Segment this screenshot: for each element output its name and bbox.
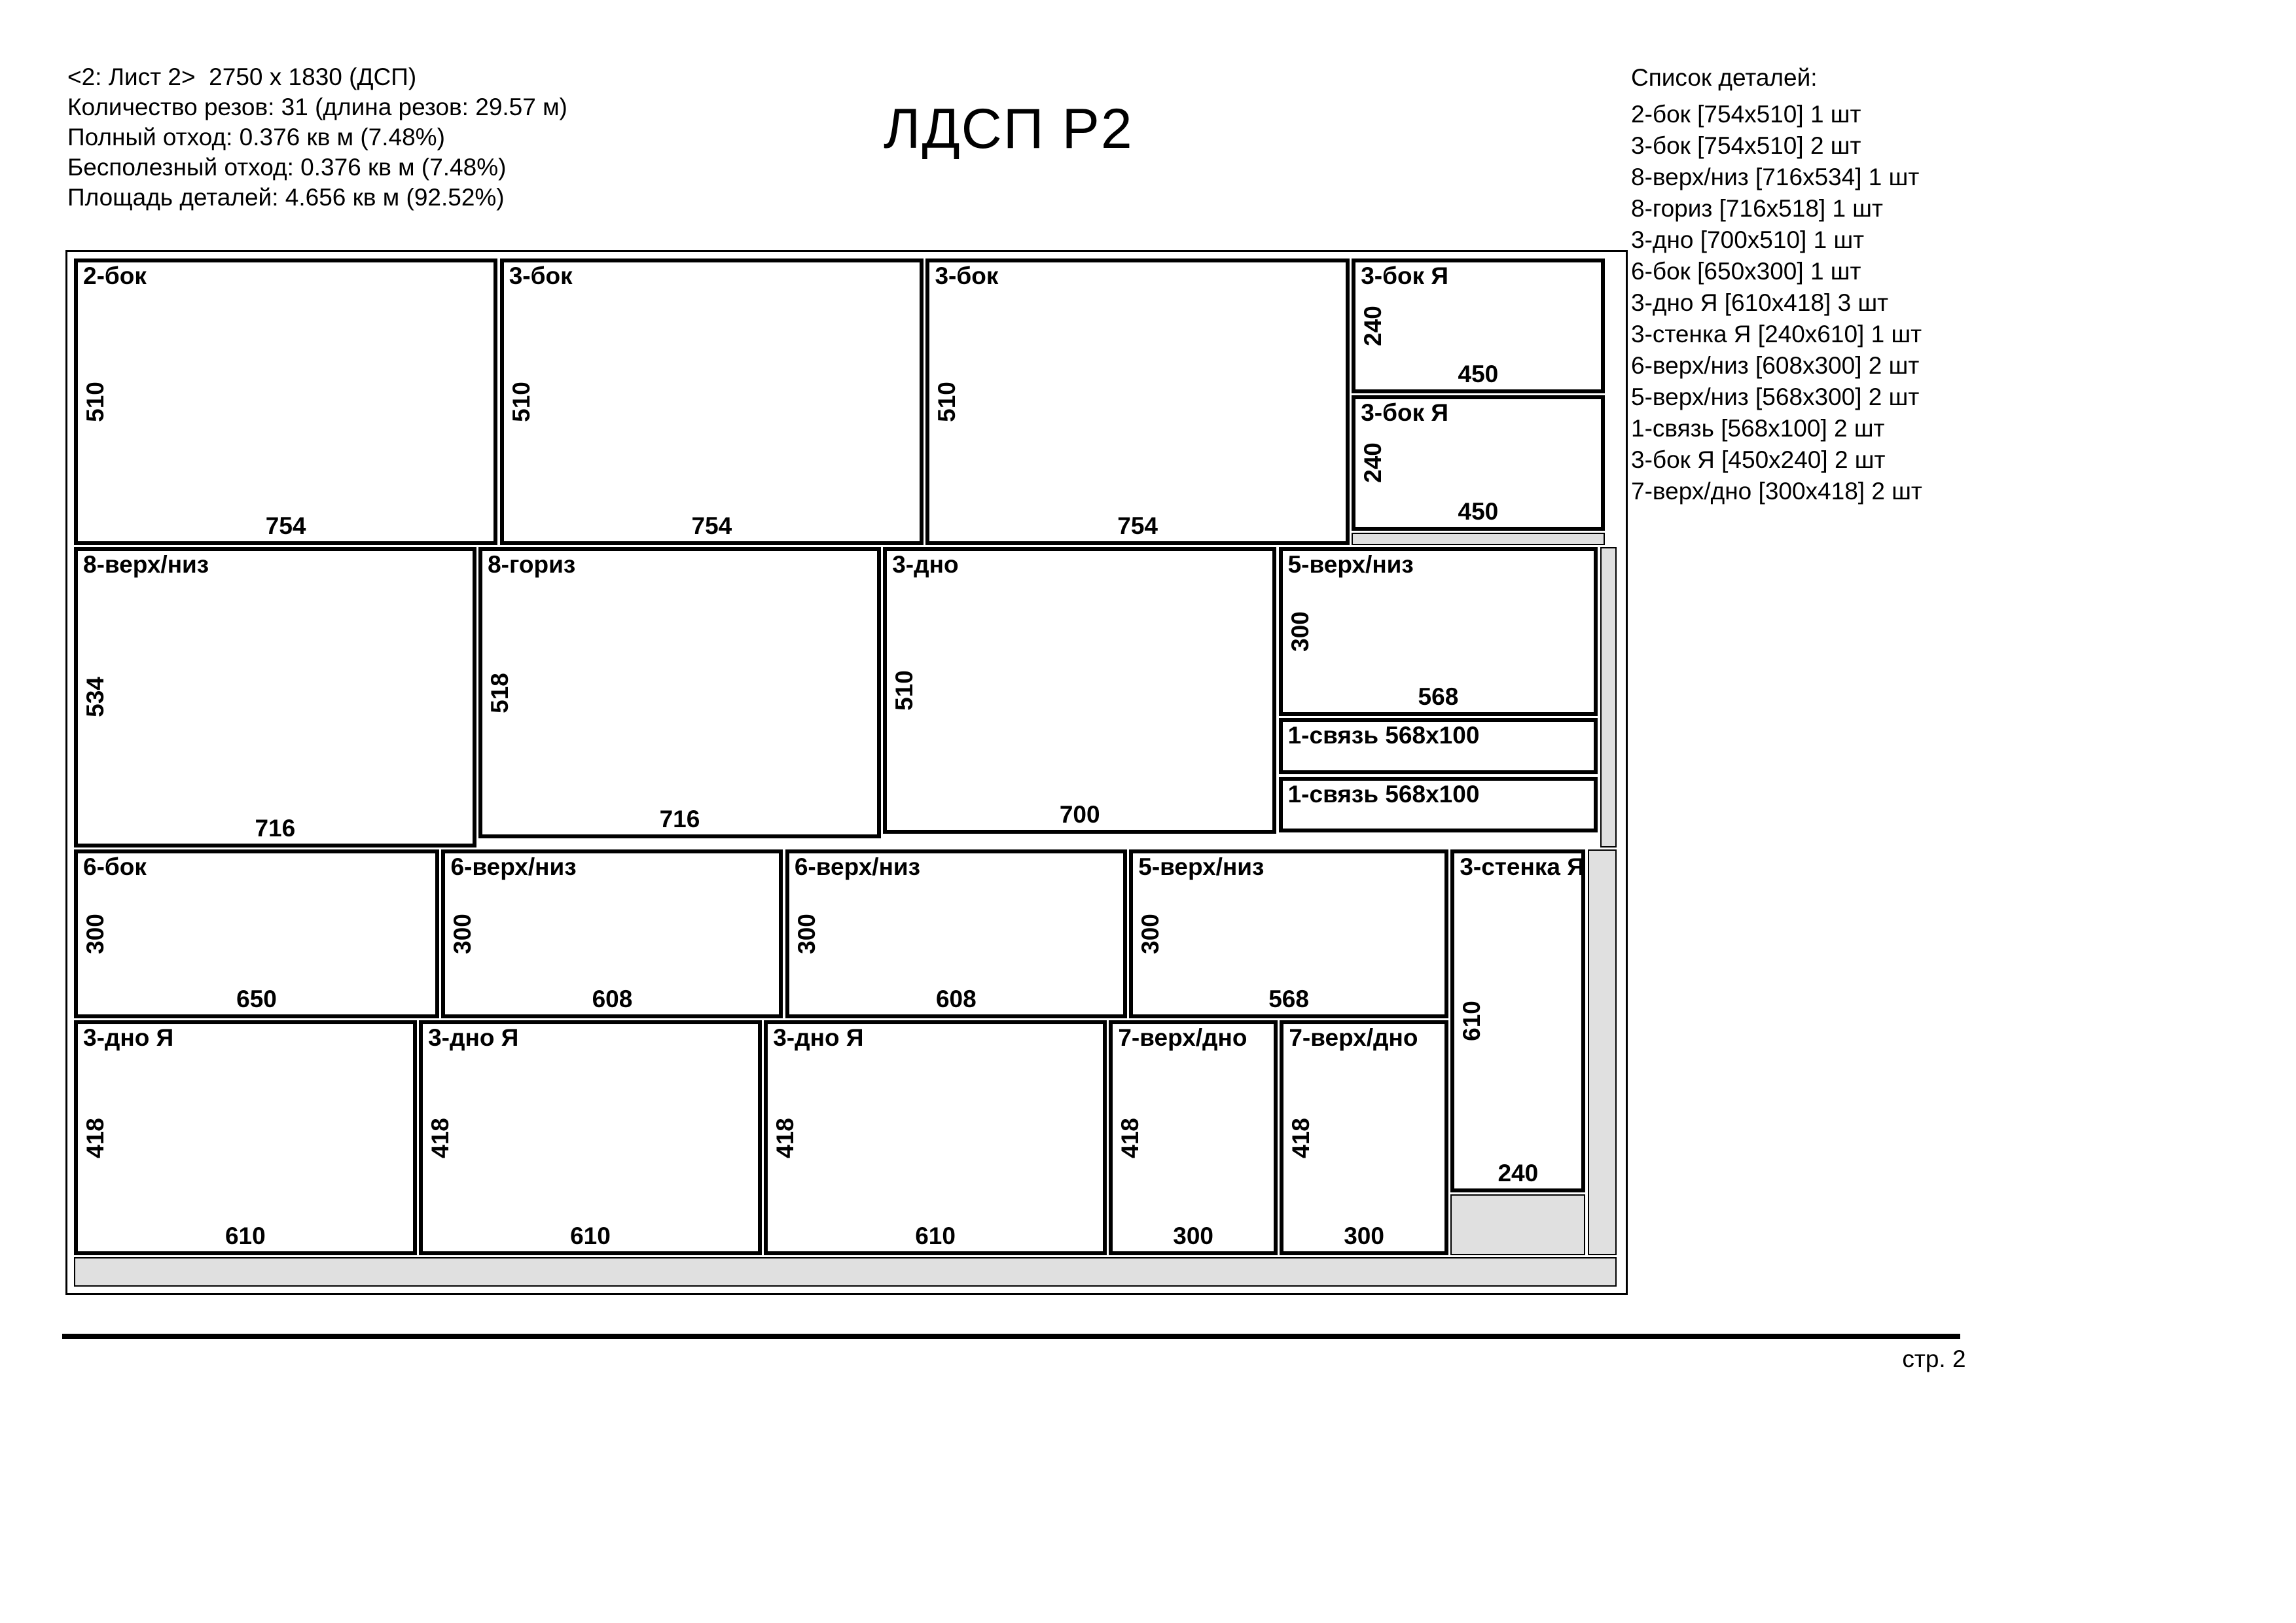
panel-width-dim: 568 [1133, 986, 1444, 1013]
panel-width-dim: 568 [1283, 683, 1594, 711]
panel-height-dim: 510 [933, 382, 961, 422]
panel-height-dim: 418 [1117, 1118, 1144, 1158]
parts-list-title: Список деталей: [1631, 62, 1922, 94]
footer-divider [62, 1334, 1960, 1339]
cut-panel: 7-верх/дно418300 [1109, 1020, 1278, 1255]
parts-list-item: 7-верх/дно [300x418] 2 шт [1631, 476, 1922, 507]
waste-area [1352, 533, 1604, 545]
panel-label: 7-верх/дно [1118, 1024, 1247, 1052]
parts-list-item: 8-гориз [716x518] 1 шт [1631, 193, 1922, 224]
panel-label: 6-бок [83, 853, 147, 881]
panel-width-dim: 716 [78, 815, 473, 842]
panel-width-dim: 754 [929, 512, 1345, 540]
cut-panel: 8-верх/низ534716 [74, 547, 476, 847]
panel-height-dim: 300 [793, 914, 821, 954]
cut-panel: 6-верх/низ300608 [441, 849, 783, 1018]
stats-line: <2: Лист 2> 2750 x 1830 (ДСП) [67, 62, 567, 92]
parts-list-item: 8-верх/низ [716x534] 1 шт [1631, 162, 1922, 193]
panel-width-dim: 240 [1454, 1160, 1581, 1187]
panel-label: 3-стенка Я [1460, 853, 1585, 881]
parts-list-items: 2-бок [754x510] 1 шт3-бок [754x510] 2 шт… [1631, 99, 1922, 507]
cut-panel: 3-дно510700 [883, 547, 1276, 834]
stats-line: Площадь деталей: 4.656 кв м (92.52%) [67, 183, 567, 213]
cut-panel: 3-бок510754 [500, 259, 924, 545]
panel-width-dim: 754 [504, 512, 920, 540]
panel-height-dim: 300 [1287, 611, 1314, 652]
cut-panel: 5-верх/низ300568 [1129, 849, 1448, 1018]
panel-label: 6-верх/низ [795, 853, 920, 881]
cut-panel: 3-бок510754 [925, 259, 1349, 545]
panel-label: 3-дно Я [83, 1024, 173, 1052]
cut-panel: 3-бок Я240450 [1352, 395, 1604, 530]
cut-panel: 3-бок Я240450 [1352, 259, 1604, 393]
panel-width-dim: 608 [789, 986, 1123, 1013]
parts-list-item: 6-бок [650x300] 1 шт [1631, 256, 1922, 287]
panel-width-dim: 716 [482, 806, 877, 833]
cut-panel: 3-дно Я418610 [74, 1020, 417, 1255]
panel-height-dim: 510 [891, 670, 918, 711]
panel-width-dim: 700 [887, 801, 1272, 829]
cut-panel: 6-верх/низ300608 [785, 849, 1127, 1018]
stats-line: Бесполезный отход: 0.376 кв м (7.48%) [67, 152, 567, 183]
panel-width-dim: 608 [445, 986, 779, 1013]
waste-area [1588, 849, 1617, 1255]
panel-height-dim: 300 [82, 914, 109, 954]
panel-label: 3-дно [892, 551, 958, 579]
panel-width-dim: 300 [1113, 1222, 1274, 1250]
parts-list-item: 1-связь [568x100] 2 шт [1631, 413, 1922, 444]
panel-label: 1-связь 568x100 [1288, 781, 1480, 808]
panel-height-dim: 300 [449, 914, 476, 954]
panel-width-dim: 650 [78, 986, 435, 1013]
panel-label: 1-связь 568x100 [1288, 722, 1480, 749]
page-number: стр. 2 [1878, 1346, 1990, 1373]
cut-panel: 3-дно Я418610 [764, 1020, 1107, 1255]
stats-line: Количество резов: 31 (длина резов: 29.57… [67, 92, 567, 122]
parts-list-item: 3-стенка Я [240x610] 1 шт [1631, 319, 1922, 350]
panel-label: 3-бок Я [1361, 262, 1448, 290]
parts-list-item: 3-дно [700x510] 1 шт [1631, 224, 1922, 256]
panel-height-dim: 510 [508, 382, 535, 422]
sheet-diagram: 2-бок5107543-бок5107543-бок5107543-бок Я… [65, 250, 1628, 1295]
panel-label: 6-верх/низ [450, 853, 576, 881]
panel-height-dim: 418 [82, 1118, 109, 1158]
panel-height-dim: 300 [1137, 914, 1164, 954]
parts-list-item: 3-бок [754x510] 2 шт [1631, 130, 1922, 162]
panel-label: 5-верх/низ [1288, 551, 1414, 579]
waste-area [1600, 547, 1617, 847]
parts-list-item: 2-бок [754x510] 1 шт [1631, 99, 1922, 130]
page-title: ЛДСП Р2 [884, 97, 1134, 162]
panel-height-dim: 240 [1359, 443, 1387, 484]
panel-width-dim: 610 [768, 1222, 1103, 1250]
cut-panel: 3-стенка Я610240 [1450, 849, 1585, 1192]
sheet-stats: <2: Лист 2> 2750 x 1830 (ДСП)Количество … [67, 62, 567, 213]
cut-panel: 8-гориз518716 [478, 547, 881, 838]
panel-height-dim: 418 [772, 1118, 799, 1158]
waste-area [1450, 1194, 1585, 1255]
parts-list-item: 5-верх/низ [568x300] 2 шт [1631, 382, 1922, 413]
panel-label: 2-бок [83, 262, 147, 290]
panel-label: 3-бок [509, 262, 573, 290]
cut-panel: 2-бок510754 [74, 259, 497, 545]
parts-list-item: 6-верх/низ [608x300] 2 шт [1631, 350, 1922, 382]
panel-width-dim: 610 [78, 1222, 413, 1250]
panel-height-dim: 418 [1287, 1118, 1315, 1158]
panel-label: 3-дно Я [773, 1024, 863, 1052]
panel-label: 8-верх/низ [83, 551, 209, 579]
panel-height-dim: 534 [82, 677, 109, 718]
cut-panel: 1-связь 568x100 [1279, 777, 1598, 833]
cut-panel: 3-дно Я418610 [419, 1020, 762, 1255]
panel-label: 3-дно Я [428, 1024, 518, 1052]
panel-label: 3-бок [935, 262, 998, 290]
panel-width-dim: 610 [423, 1222, 758, 1250]
cut-panel: 5-верх/низ300568 [1279, 547, 1598, 716]
panel-width-dim: 754 [78, 512, 493, 540]
cut-panel: 1-связь 568x100 [1279, 718, 1598, 774]
panel-label: 3-бок Я [1361, 399, 1448, 427]
panel-label: 5-верх/низ [1138, 853, 1264, 881]
panel-height-dim: 610 [1458, 1001, 1486, 1041]
parts-list-item: 3-бок Я [450x240] 2 шт [1631, 444, 1922, 476]
stats-line: Полный отход: 0.376 кв м (7.48%) [67, 122, 567, 152]
panel-label: 7-верх/дно [1289, 1024, 1418, 1052]
panel-width-dim: 450 [1355, 498, 1600, 526]
panel-label: 8-гориз [488, 551, 575, 579]
panel-height-dim: 418 [427, 1118, 454, 1158]
waste-area [74, 1257, 1617, 1287]
panel-width-dim: 450 [1355, 361, 1600, 388]
cut-panel: 7-верх/дно418300 [1280, 1020, 1448, 1255]
panel-height-dim: 240 [1359, 306, 1387, 346]
panel-width-dim: 300 [1283, 1222, 1444, 1250]
parts-list: Список деталей: 2-бок [754x510] 1 шт3-бо… [1631, 62, 1922, 507]
parts-list-item: 3-дно Я [610x418] 3 шт [1631, 287, 1922, 319]
panel-height-dim: 518 [486, 673, 514, 713]
cut-panel: 6-бок300650 [74, 849, 439, 1018]
panel-height-dim: 510 [82, 382, 109, 422]
